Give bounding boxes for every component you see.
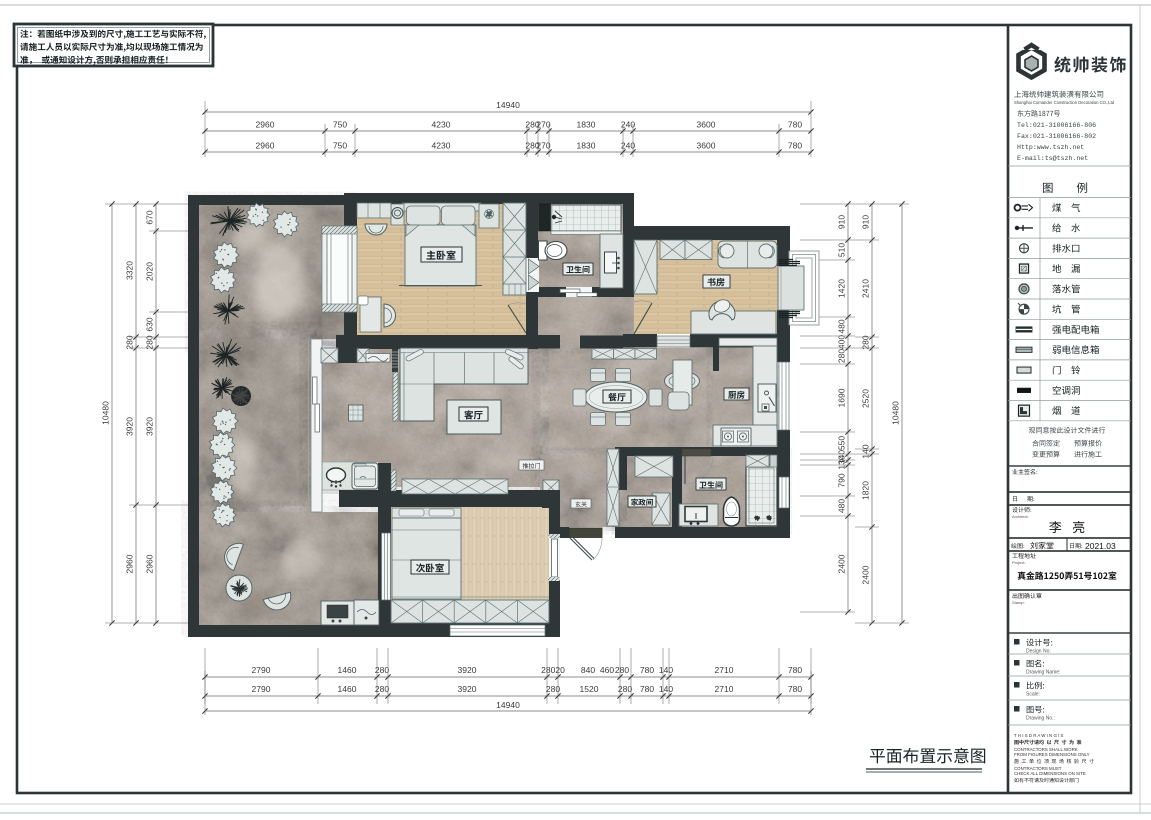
svg-text:1420: 1420 bbox=[837, 279, 847, 298]
svg-text:1830: 1830 bbox=[577, 120, 596, 130]
svg-text:1520: 1520 bbox=[580, 684, 599, 694]
svg-text:28020: 28020 bbox=[541, 665, 565, 675]
svg-text:670: 670 bbox=[145, 210, 155, 224]
svg-text:280: 280 bbox=[375, 684, 389, 694]
svg-text:130: 130 bbox=[837, 455, 847, 469]
svg-text:4230: 4230 bbox=[432, 141, 451, 151]
svg-text:780: 780 bbox=[788, 141, 802, 151]
svg-text:840: 840 bbox=[581, 665, 595, 675]
svg-text:Project:: Project: bbox=[1012, 560, 1026, 565]
svg-text:750: 750 bbox=[333, 141, 347, 151]
svg-text:2790: 2790 bbox=[252, 665, 271, 675]
svg-text:280: 280 bbox=[861, 335, 871, 349]
svg-text:750: 750 bbox=[333, 120, 347, 130]
svg-text:3600: 3600 bbox=[697, 120, 716, 130]
svg-text:Drawing Name:: Drawing Name: bbox=[1026, 670, 1060, 676]
svg-text:2960: 2960 bbox=[256, 141, 275, 151]
svg-text:14940: 14940 bbox=[496, 100, 520, 110]
svg-text:3920: 3920 bbox=[458, 684, 477, 694]
svg-text:780: 780 bbox=[788, 120, 802, 130]
svg-text:910: 910 bbox=[837, 215, 847, 229]
svg-text:2410: 2410 bbox=[861, 279, 871, 298]
svg-text:460: 460 bbox=[600, 665, 614, 675]
svg-text:3920: 3920 bbox=[125, 417, 135, 436]
svg-text:780: 780 bbox=[640, 684, 654, 694]
svg-text:280: 280 bbox=[618, 684, 632, 694]
svg-text:Architect:: Architect: bbox=[1012, 514, 1029, 519]
svg-text:480: 480 bbox=[837, 499, 847, 513]
svg-text:Shanghai Comander Construction: Shanghai Comander Construction Decoratio… bbox=[1014, 100, 1115, 105]
svg-text:3920: 3920 bbox=[145, 417, 155, 436]
svg-text:280: 280 bbox=[125, 335, 135, 349]
svg-text:280: 280 bbox=[615, 665, 629, 675]
svg-text:2400: 2400 bbox=[837, 554, 847, 573]
svg-text:T H I S D R A W I N G I S: T H I S D R A W I N G I S bbox=[1014, 733, 1064, 738]
svg-text:270: 270 bbox=[536, 120, 550, 130]
svg-text:240: 240 bbox=[621, 141, 635, 151]
svg-text:10480: 10480 bbox=[891, 401, 901, 425]
svg-text:2020: 2020 bbox=[145, 262, 155, 281]
svg-text:2960: 2960 bbox=[256, 120, 275, 130]
svg-text:2960: 2960 bbox=[145, 554, 155, 573]
svg-text:2710: 2710 bbox=[715, 684, 734, 694]
svg-text:400: 400 bbox=[837, 335, 847, 349]
svg-text:1460: 1460 bbox=[338, 665, 357, 675]
svg-text:910: 910 bbox=[861, 215, 871, 229]
svg-text:Design No:: Design No: bbox=[1026, 649, 1051, 655]
svg-text:Drawing No.:: Drawing No.: bbox=[1026, 716, 1055, 722]
svg-text:140: 140 bbox=[659, 665, 673, 675]
svg-text:280: 280 bbox=[837, 349, 847, 363]
svg-text:CHECK ALL DIMENSIONS ON SITE: CHECK ALL DIMENSIONS ON SITE bbox=[1014, 771, 1086, 776]
svg-text:Http:www.tszh.net: Http:www.tszh.net bbox=[1017, 144, 1084, 151]
svg-text:3920: 3920 bbox=[458, 665, 477, 675]
svg-text:10480: 10480 bbox=[101, 401, 111, 425]
svg-text:3320: 3320 bbox=[125, 261, 135, 280]
svg-text:780: 780 bbox=[640, 665, 654, 675]
svg-text:140: 140 bbox=[861, 444, 871, 458]
svg-text:Fax:021-31006166-802: Fax:021-31006166-802 bbox=[1017, 133, 1096, 140]
svg-text:2021.03: 2021.03 bbox=[1085, 541, 1116, 551]
svg-text:550: 550 bbox=[837, 436, 847, 450]
svg-text:1690: 1690 bbox=[837, 388, 847, 407]
svg-text:790: 790 bbox=[837, 473, 847, 487]
svg-text:E-mail:ts@tszh.net: E-mail:ts@tszh.net bbox=[1017, 155, 1088, 162]
svg-text:480: 480 bbox=[837, 319, 847, 333]
svg-text:630: 630 bbox=[145, 317, 155, 331]
svg-text:780: 780 bbox=[788, 684, 802, 694]
svg-text:1460: 1460 bbox=[338, 684, 357, 694]
svg-text:140: 140 bbox=[659, 684, 673, 694]
svg-text:2790: 2790 bbox=[252, 684, 271, 694]
svg-text:4230: 4230 bbox=[432, 120, 451, 130]
svg-text:2710: 2710 bbox=[715, 665, 734, 675]
svg-text:780: 780 bbox=[788, 665, 802, 675]
svg-text:280: 280 bbox=[145, 335, 155, 349]
svg-text:14940: 14940 bbox=[496, 700, 520, 710]
svg-text:510: 510 bbox=[837, 243, 847, 257]
svg-text:Tel:021-31006166-806: Tel:021-31006166-806 bbox=[1017, 122, 1096, 129]
svg-text:280: 280 bbox=[546, 684, 560, 694]
svg-text:2520: 2520 bbox=[861, 389, 871, 408]
svg-text:3600: 3600 bbox=[697, 141, 716, 151]
svg-text:1830: 1830 bbox=[577, 141, 596, 151]
svg-text:Stamp:: Stamp: bbox=[1012, 600, 1025, 605]
svg-text:270: 270 bbox=[536, 141, 550, 151]
svg-text:Scale:: Scale: bbox=[1026, 692, 1040, 698]
svg-text:1820: 1820 bbox=[861, 481, 871, 500]
svg-text:2960: 2960 bbox=[125, 554, 135, 573]
svg-text:FROM FIGURES DIMENSIONS ONLY: FROM FIGURES DIMENSIONS ONLY bbox=[1014, 752, 1090, 757]
svg-text:2400: 2400 bbox=[861, 565, 871, 584]
